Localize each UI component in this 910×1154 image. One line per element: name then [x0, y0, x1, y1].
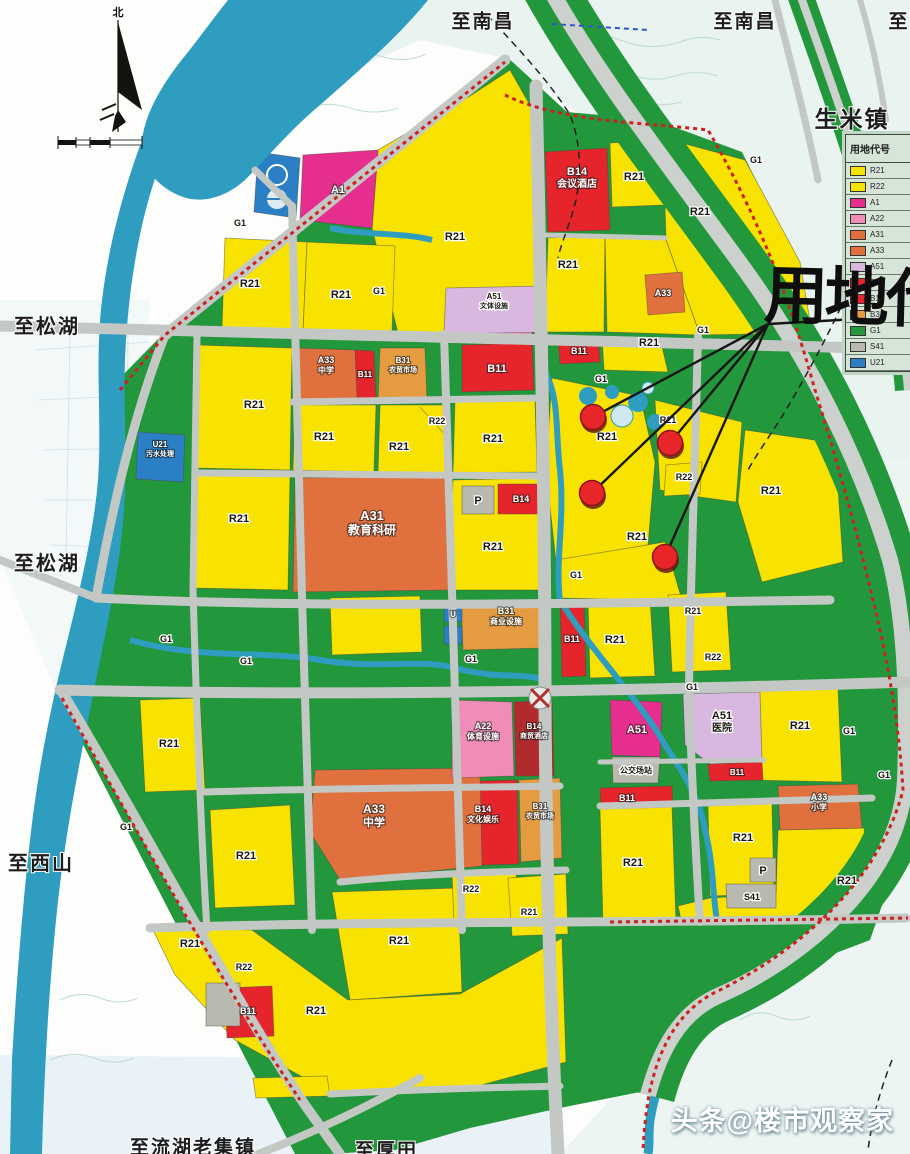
site-marker: [653, 545, 678, 570]
parcel-label-B11: B11: [730, 768, 745, 777]
legend-color-chip: [850, 342, 866, 352]
parcel-label-R21: R21: [837, 875, 857, 887]
place-label: 至西山: [8, 852, 74, 875]
place-label: 至: [888, 11, 909, 32]
parcel-label-R22: R22: [676, 472, 693, 482]
legend-row: S41: [846, 339, 910, 355]
parcel-R21: [545, 236, 605, 332]
parcel-label-A51: A51: [627, 724, 647, 736]
legend-code: A31: [870, 230, 884, 239]
parcel-label-R21: R21: [685, 606, 702, 616]
legend-row: U21: [846, 355, 910, 371]
parcel-label-B11: B11: [487, 363, 507, 375]
parcel-R21: [193, 345, 292, 470]
parcel-label-R21: R21: [521, 907, 538, 917]
parcel-label-B11: B11: [564, 634, 580, 644]
legend-code: S41: [870, 342, 884, 351]
annotation-title: 用地代: [763, 244, 910, 340]
legend-header: 用地代号: [846, 135, 910, 163]
legend-color-chip: [850, 214, 866, 224]
parcel-label-R21: R21: [389, 441, 409, 453]
parcel-label-A33: A33: [655, 288, 672, 298]
parcel-label-R22: R22: [429, 416, 446, 426]
parcel-label-R21: R21: [314, 431, 334, 443]
parcel-label-B11: B11: [240, 1006, 256, 1016]
interchange: [529, 687, 551, 709]
parcel-label-R21: R21: [180, 938, 200, 950]
parcel-label-R21: R21: [331, 289, 351, 301]
parcel-R21: [193, 475, 290, 590]
parcel-label-G1: G1: [878, 770, 890, 780]
parcel-label-G1: G1: [595, 374, 607, 384]
parcel-label-R21: R21: [761, 485, 781, 497]
parcel-label-B11: B11: [619, 793, 635, 803]
legend-row: A31: [846, 227, 910, 243]
place-label: 生米镇: [815, 106, 890, 132]
parcel-label-R22: R22: [236, 962, 253, 972]
place-label: 至松湖: [14, 552, 80, 575]
site-marker: [658, 431, 683, 456]
legend-color-chip: [850, 358, 866, 368]
parcel-label-G1: G1: [465, 654, 477, 664]
parcel-label-R21: R21: [483, 433, 503, 445]
parcel-label-G1: G1: [160, 634, 172, 644]
parcel-label-R21: R21: [483, 541, 503, 553]
parcel-label-R21: R21: [627, 531, 647, 543]
legend-row: R21: [846, 163, 910, 179]
parcel-label-R21: R21: [236, 850, 256, 862]
map-svg: 北 A1R21R21R21G1G1B14会议酒店R21R21R21A33G1R2…: [0, 0, 910, 1154]
legend-code: A1: [870, 198, 880, 207]
parcel-label-G1: G1: [120, 822, 132, 832]
parcel-label-G1: G1: [373, 286, 385, 296]
parcel-label-A33: A33中学: [363, 802, 385, 829]
parcel-R21: [293, 405, 376, 472]
parcel-label-G1: G1: [234, 218, 246, 228]
legend-code: R22: [870, 182, 885, 191]
parcel-label-G1: G1: [686, 682, 698, 692]
parcel-label-R21: R21: [790, 720, 810, 732]
parcel-label-G1: G1: [750, 155, 762, 165]
parcel-label-P: P: [759, 865, 766, 877]
parcel-label-P: P: [474, 495, 481, 507]
parcel-label-R21: R21: [639, 337, 659, 349]
planning-map-page: { "map": { "north_label": "北", "annotati…: [0, 0, 910, 1154]
parcel-label-G1: G1: [240, 656, 252, 666]
parcel-label-R22: R22: [463, 884, 480, 894]
parcel-label-R21: R21: [605, 634, 625, 646]
parcel-label-A1: A1: [331, 184, 345, 196]
legend-row: A22: [846, 211, 910, 227]
parcel-label-B11: B11: [358, 370, 373, 379]
parcel-label-R21: R21: [690, 206, 710, 218]
legend-row: R22: [846, 179, 910, 195]
north-label: 北: [113, 5, 124, 19]
parcel-label-R21: R21: [597, 431, 617, 443]
legend-color-chip: [850, 182, 866, 192]
parcel-label-公交场站: 公交场站: [620, 765, 652, 775]
place-label: 至厚田: [355, 1140, 418, 1154]
parcel-label-G1: G1: [697, 325, 709, 335]
legend-color-chip: [850, 166, 866, 176]
parcel-label-R21: R21: [558, 259, 578, 271]
parcel-label-R21: R21: [445, 231, 465, 243]
parcel-label-R21: R21: [306, 1005, 326, 1017]
legend-row: A1: [846, 195, 910, 211]
parcel-label-R21: R21: [240, 278, 260, 290]
parcel-label-B11: B11: [571, 346, 587, 356]
site-marker: [580, 481, 605, 506]
legend-color-chip: [850, 230, 866, 240]
parcel-label-R21: R21: [389, 935, 409, 947]
watermark: 头条@楼市观察家: [671, 1099, 894, 1138]
parcel-label-B14: B14: [513, 494, 530, 504]
parcel-label-S41: S41: [744, 892, 760, 902]
parcel-label-R21: R21: [229, 513, 249, 525]
parcel-label-R21: R21: [244, 399, 264, 411]
parcel-label-R21: R21: [624, 171, 644, 183]
legend-color-chip: [850, 198, 866, 208]
place-label: 至松湖: [14, 315, 80, 338]
parcel-label-G1: G1: [843, 726, 855, 736]
place-label: 至南昌: [713, 10, 776, 32]
parcel-label-R21: R21: [733, 832, 753, 844]
parcel-label-R21: R21: [159, 738, 179, 750]
parcel-label-G1: G1: [570, 570, 582, 580]
parcel-label-R21: R21: [623, 857, 643, 869]
parcel-label-R22: R22: [705, 652, 722, 662]
legend-code: U21: [870, 358, 885, 367]
place-label: 至南昌: [451, 10, 514, 32]
site-marker: [581, 405, 606, 430]
legend-code: R21: [870, 166, 885, 175]
parcel-label-U: U: [450, 610, 456, 619]
legend-code: A22: [870, 214, 884, 223]
place-label: 至流湖老集镇: [130, 1135, 256, 1154]
parcel-R21: [750, 688, 842, 782]
